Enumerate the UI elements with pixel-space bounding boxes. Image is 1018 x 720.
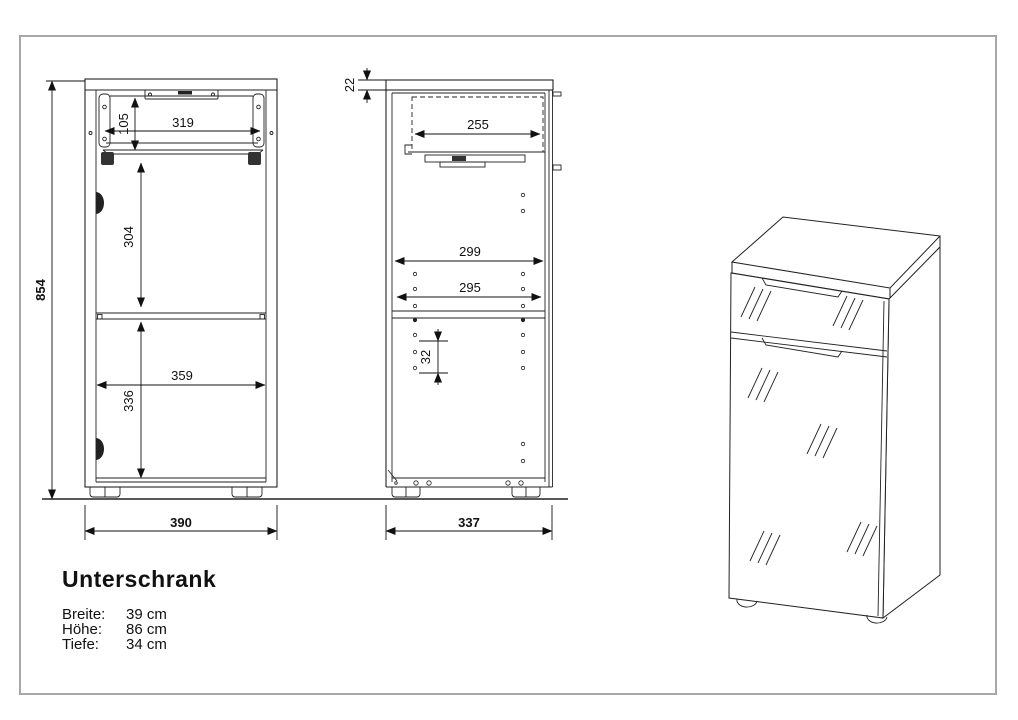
dim-lower-compartment-height: 336 xyxy=(121,390,136,412)
spec-label: Breite: xyxy=(62,607,126,622)
spec-label: Tiefe: xyxy=(62,637,126,652)
spec-value: 34 cm xyxy=(126,637,167,652)
perspective-view xyxy=(729,217,940,623)
side-drawer xyxy=(405,97,545,167)
dim-overall-depth: 337 xyxy=(458,515,480,530)
spec-label: Höhe: xyxy=(62,622,126,637)
front-feet xyxy=(90,487,262,497)
side-top-panel xyxy=(386,80,553,90)
dim-shelf-pin-spacing: 32 xyxy=(418,350,433,364)
side-feet xyxy=(392,487,540,497)
front-shelf xyxy=(96,313,266,319)
front-carcass xyxy=(85,79,277,487)
front-face xyxy=(729,273,889,618)
shelf-pin-holes xyxy=(413,193,524,462)
front-hinges xyxy=(96,192,104,460)
dim-interior-depth-shelf: 295 xyxy=(459,280,481,295)
side-bottom-screws xyxy=(395,481,524,485)
front-view-dimension-labels: 854 105 319 304 336 359 390 xyxy=(33,113,194,530)
spec-row-tiefe: Tiefe: 34 cm xyxy=(62,637,167,652)
dim-drawer-opening-height: 105 xyxy=(116,113,131,135)
right-side-face xyxy=(883,247,940,618)
dim-overall-width: 390 xyxy=(170,515,192,530)
side-shelf xyxy=(392,311,545,318)
drawer-glide-right xyxy=(248,152,261,165)
spec-value: 39 cm xyxy=(126,607,167,622)
page-title: Unterschrank xyxy=(62,566,216,593)
dim-drawer-opening-width: 319 xyxy=(172,115,194,130)
front-edge-hook-lower xyxy=(553,165,561,170)
dim-shelf-width: 359 xyxy=(171,368,193,383)
drawing-sheet: 854 105 319 304 336 359 390 xyxy=(0,0,1018,720)
top-face xyxy=(732,217,940,288)
dim-drawer-depth: 255 xyxy=(467,117,489,132)
spec-row-hoehe: Höhe: 86 cm xyxy=(62,622,167,637)
dim-upper-compartment-height: 304 xyxy=(121,226,136,248)
dim-top-panel-thickness: 22 xyxy=(342,78,357,92)
side-view-dimension-labels: 22 255 299 295 32 337 xyxy=(342,78,489,530)
spec-value: 86 cm xyxy=(126,622,167,637)
dim-overall-height: 854 xyxy=(33,278,48,300)
drawer-glide-left xyxy=(101,152,114,165)
front-edge-hook-upper xyxy=(553,92,561,96)
front-view xyxy=(85,79,277,497)
spec-row-breite: Breite: 39 cm xyxy=(62,607,167,622)
dim-interior-depth-upper: 299 xyxy=(459,244,481,259)
spec-table: Breite: 39 cm Höhe: 86 cm Tiefe: 34 cm xyxy=(62,607,167,652)
